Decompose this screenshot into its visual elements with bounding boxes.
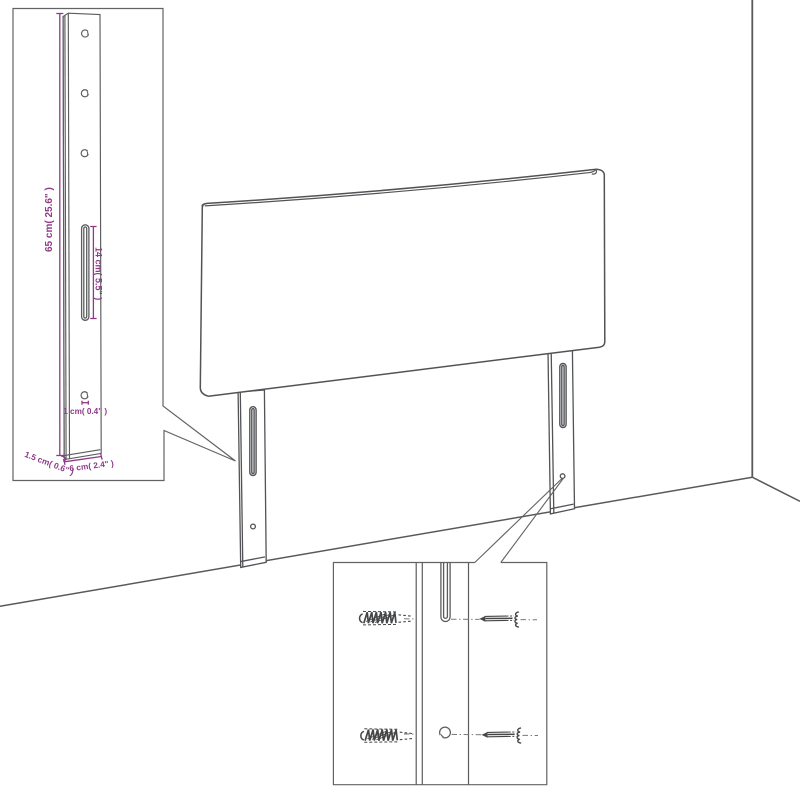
svg-text:1 cm( 0.4" ): 1 cm( 0.4" ): [63, 407, 107, 416]
svg-text:65 cm( 25.6" ): 65 cm( 25.6" ): [44, 187, 55, 252]
svg-text:14 cm( 5.5" ): 14 cm( 5.5" ): [94, 247, 104, 300]
